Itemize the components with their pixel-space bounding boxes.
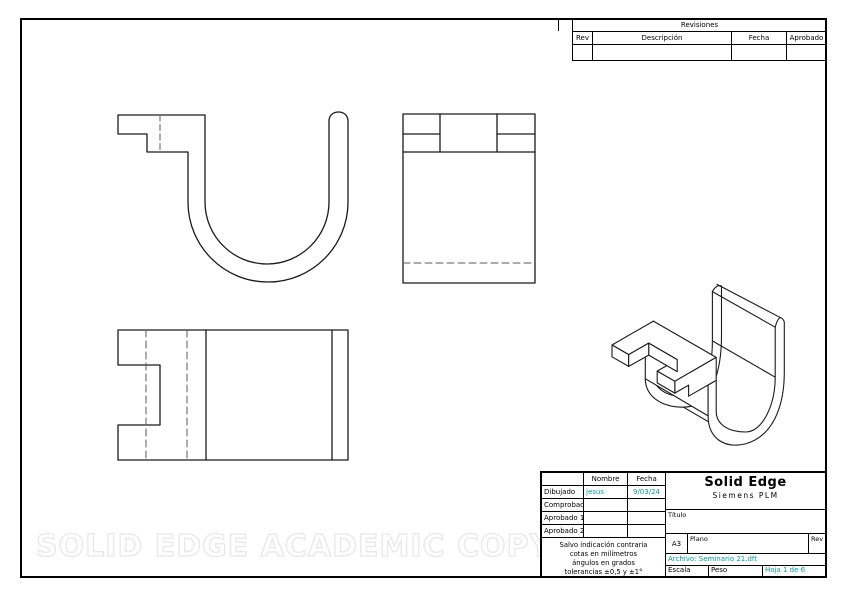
signature-row-label: Aprobado 1 [542,512,584,525]
signatures-corner-cell [542,473,584,486]
brand-cell: Solid Edge Siemens PLM [666,473,825,510]
brand-name: Solid Edge [666,477,825,489]
tolerance-note: Salvo indicación contraria cotas en milí… [542,538,666,576]
signature-row-name [584,525,628,538]
signature-row-date [628,499,666,512]
tolerance-note-line: cotas en milímetros [542,550,665,559]
hoja-cell: Hoja 1 de 6 [763,566,825,576]
isometric-view [612,284,784,445]
tolerance-note-line: ángulos en grados [542,559,665,568]
title-block: Nombre Fecha Dibujado jesus 9/03/24 Comp… [540,471,827,578]
signature-row-name [584,512,628,525]
signature-row-label: Aprobado 2 [542,525,584,538]
signatures-name-header: Nombre [584,473,628,486]
signature-row-name: jesus [584,486,628,499]
revision-row-empty [593,45,732,60]
signature-row-date: 9/03/24 [628,486,666,499]
signature-row-date [628,525,666,538]
signature-row-label: Comprobado [542,499,584,512]
brand-subtitle: Siemens PLM [666,490,825,502]
revisions-col-rev: Rev [573,32,593,45]
tolerance-note-line: Salvo indicación contraria [542,541,665,550]
revisions-title: Revisiones [573,20,826,32]
revision-row-empty [732,45,787,60]
revisions-table: Revisiones Rev Descripción Fecha Aprobad… [572,19,827,61]
escala-cell: Escala [666,566,709,576]
side-view [403,114,535,283]
revisions-col-aprobado: Aprobado [787,32,826,45]
front-view [118,112,348,282]
revision-row-empty [573,45,593,60]
revisions-col-fecha: Fecha [732,32,787,45]
revisions-col-descripcion: Descripción [593,32,732,45]
titulo-cell: Título [666,510,825,534]
archivo-cell: Archivo: Seminario 21.dft [666,554,825,566]
peso-cell: Peso [709,566,763,576]
border-zone-tick [558,19,559,31]
plano-cell: Plano [688,534,809,554]
tolerance-note-line: tolerancias ±0,5 y ±1° [542,568,665,576]
signature-row-date [628,512,666,525]
signature-row-name [584,499,628,512]
rev-cell: Rev [809,534,825,554]
top-view [118,330,348,460]
sheet-format-cell: A3 [666,534,688,554]
signatures-date-header: Fecha [628,473,666,486]
signature-row-label: Dibujado [542,486,584,499]
